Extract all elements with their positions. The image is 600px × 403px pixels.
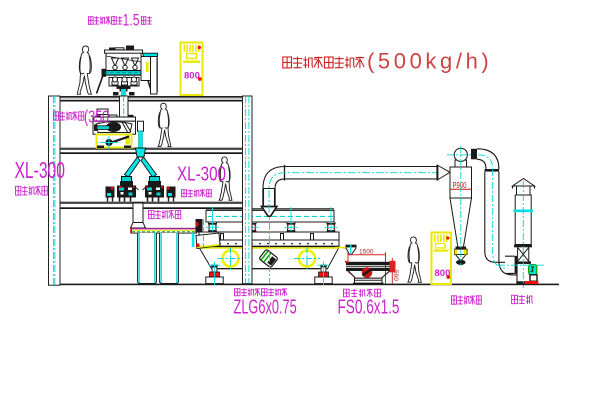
svg-text:(350: (350 bbox=[84, 107, 109, 127]
svg-text:FS0.6x1.5: FS0.6x1.5 bbox=[338, 296, 400, 318]
svg-text:1500: 1500 bbox=[359, 249, 374, 256]
svg-text:(500kg/h): (500kg/h) bbox=[367, 49, 492, 74]
svg-text:XL-300: XL-300 bbox=[177, 162, 226, 185]
svg-text:ZLG6x0.75: ZLG6x0.75 bbox=[234, 296, 297, 319]
svg-text:800: 800 bbox=[184, 71, 200, 82]
svg-text:1.5: 1.5 bbox=[123, 12, 140, 30]
svg-text:XL-300: XL-300 bbox=[15, 158, 65, 184]
